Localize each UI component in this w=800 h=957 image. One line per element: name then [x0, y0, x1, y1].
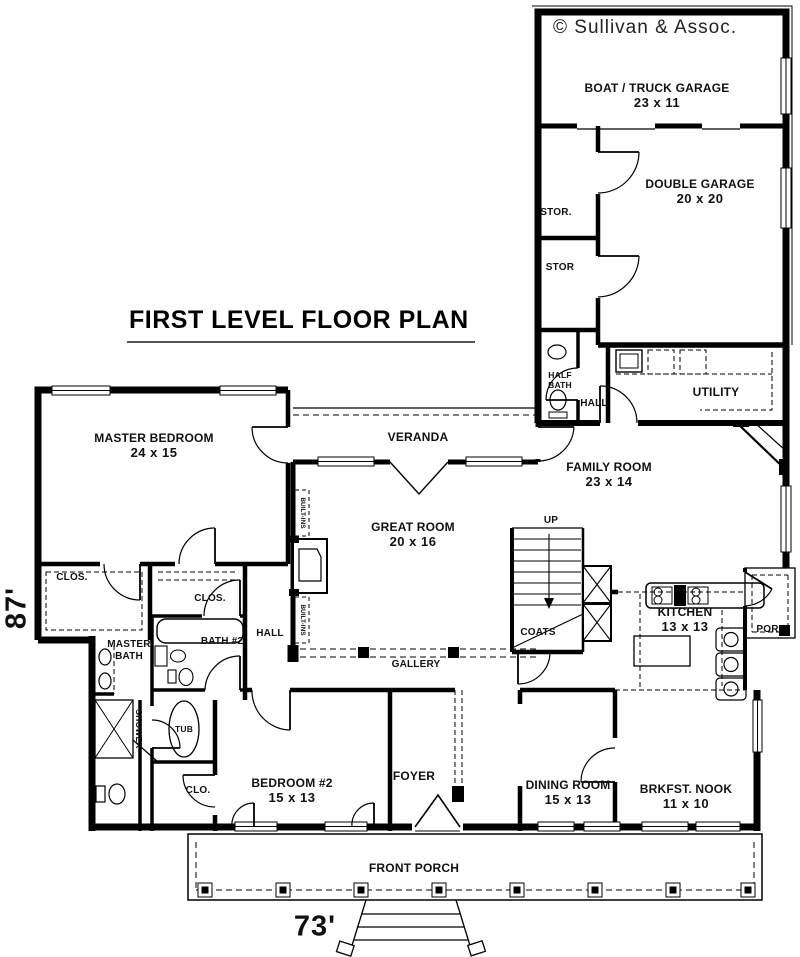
veranda-edge [293, 408, 538, 415]
label-built-ins-top: BUILT-INS [298, 497, 306, 528]
doors [104, 152, 772, 831]
bath2-fixtures [155, 619, 243, 686]
room-label-master-bedroom: MASTER BEDROOM 24 x 15 [94, 431, 213, 461]
family-room-corner-fireplace [733, 420, 786, 475]
floor-plan-linework [0, 0, 800, 957]
double-ovens [716, 628, 746, 700]
shower [95, 700, 158, 762]
room-label-foyer: FOYER [393, 769, 435, 783]
label-closet-left: CLOS. [56, 572, 88, 584]
room-label-boat-truck-garage: BOAT / TRUCK GARAGE 23 x 11 [585, 81, 730, 111]
kitchen-island-2 [634, 636, 690, 666]
room-label-double-garage: DOUBLE GARAGE 20 x 20 [645, 177, 754, 207]
label-shower: SHOWER [134, 709, 144, 748]
dimension-height: 87' [0, 587, 34, 629]
room-size: 15 x 13 [251, 790, 332, 806]
dimension-width: 73' [294, 910, 336, 945]
room-name: FAMILY ROOM [566, 460, 652, 474]
room-label-family-room: FAMILY ROOM 23 x 14 [566, 460, 652, 490]
room-name: KITCHEN [658, 605, 713, 619]
room-label-veranda: VERANDA [388, 430, 449, 444]
fixtures [95, 345, 795, 804]
label-master-bath: MASTER BATH [107, 639, 151, 663]
room-size: 20 x 20 [645, 191, 754, 207]
gallery-colonnade [300, 647, 536, 658]
wc-toilet [96, 784, 125, 804]
label-closet-walkin: CLOS. [194, 593, 226, 605]
label-built-ins-bottom: BUILT-INS [298, 604, 306, 635]
interior-walls [38, 126, 786, 831]
room-name: DOUBLE GARAGE [645, 177, 754, 191]
foyer-columns [452, 690, 464, 802]
chase-boxes [583, 566, 611, 641]
room-name: GREAT ROOM [371, 520, 455, 534]
room-name: BEDROOM #2 [251, 776, 332, 790]
outline-offset [532, 6, 792, 345]
room-size: 23 x 11 [585, 95, 730, 111]
floor-plan: © Sullivan & Assoc. FIRST LEVEL FLOOR PL… [0, 0, 800, 957]
room-size: 15 x 13 [526, 792, 611, 808]
label-up: UP [544, 515, 558, 527]
room-label-dining-room: DINING ROOM 15 x 13 [526, 778, 611, 808]
front-porch-structure [188, 834, 762, 900]
room-size: 13 x 13 [658, 619, 713, 635]
label-coats: COATS [520, 627, 555, 639]
room-name: MASTER BEDROOM [94, 431, 213, 445]
room-label-brkfst-nook: BRKFST. NOOK 11 x 10 [640, 782, 732, 812]
room-label-bedroom-2: BEDROOM #2 15 x 13 [251, 776, 332, 806]
entry-steps [336, 900, 485, 956]
room-name: DINING ROOM [526, 778, 611, 792]
label-hall-lower: HALL [256, 628, 283, 640]
room-name: BRKFST. NOOK [640, 782, 732, 796]
room-label-gallery: GALLERY [392, 659, 441, 671]
room-label-great-room: GREAT ROOM 20 x 16 [371, 520, 455, 550]
label-half-bath: HALF BATH [542, 370, 578, 390]
room-size: 11 x 10 [640, 796, 732, 812]
label-tub: TUB [175, 724, 193, 734]
room-label-kitchen: KITCHEN 13 x 13 [658, 605, 713, 635]
room-label-front-porch: FRONT PORCH [369, 861, 459, 875]
copyright-text: © Sullivan & Assoc. [553, 17, 737, 40]
room-label-utility: UTILITY [693, 385, 740, 399]
room-name: BOAT / TRUCK GARAGE [585, 81, 730, 95]
page-title: FIRST LEVEL FLOOR PLAN [127, 305, 475, 343]
label-por: POR. [756, 624, 781, 636]
utility-sink [616, 350, 642, 372]
label-hall-upper: HALL [580, 398, 607, 410]
great-room-french-doors [390, 462, 448, 494]
room-size: 24 x 15 [94, 445, 213, 461]
room-size: 23 x 14 [566, 474, 652, 490]
great-room-fireplace [289, 536, 327, 596]
label-bath-2: BATH #2 [200, 636, 244, 648]
label-storage-upper: STOR. [540, 207, 571, 219]
label-storage-lower: STOR [546, 262, 574, 274]
label-clo: CLO. [186, 785, 211, 797]
room-size: 20 x 16 [371, 534, 455, 550]
